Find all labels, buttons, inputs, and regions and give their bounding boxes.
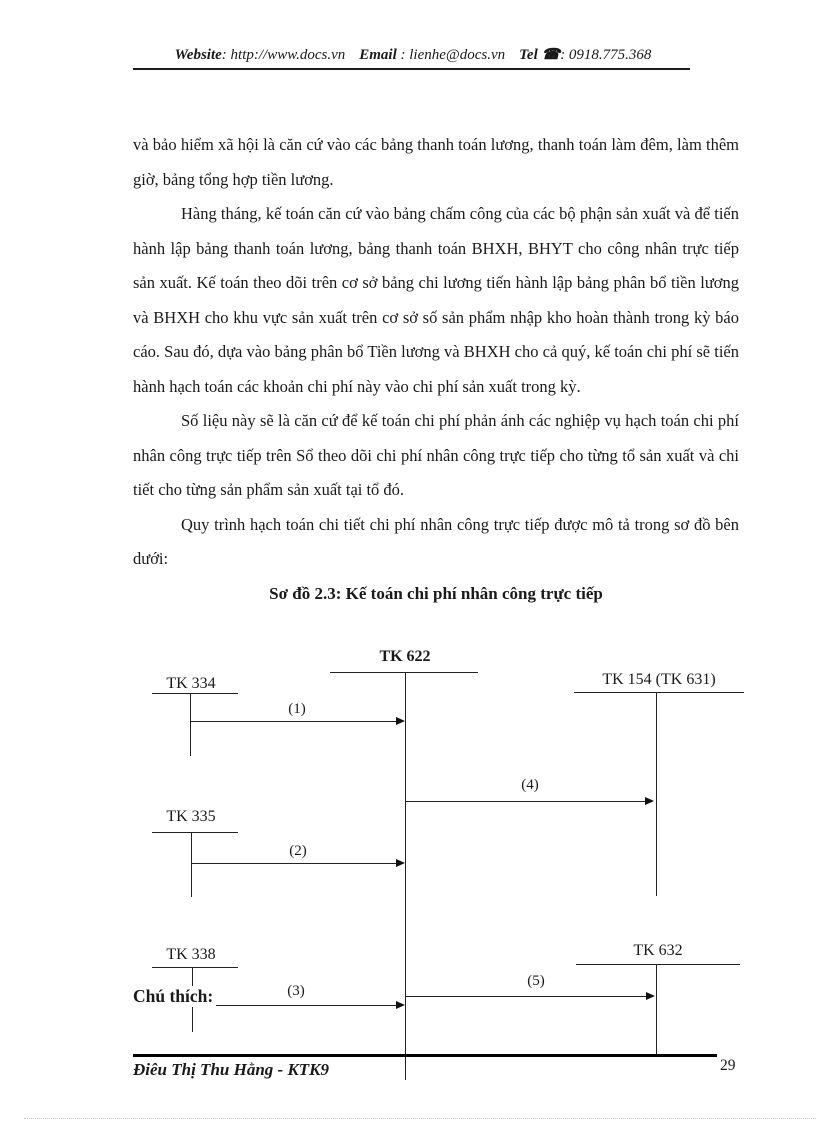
- paragraph-2: Hàng tháng, kế toán căn cứ vào bảng chấm…: [133, 197, 739, 404]
- arrow-label-2: (2): [276, 843, 320, 860]
- page-bottom-dotted-rule: [24, 1118, 816, 1119]
- t-line-tk334: [152, 693, 238, 694]
- header-website-label: Website: [175, 47, 222, 63]
- account-label-tk338: TK 338: [143, 946, 239, 964]
- paragraph-3: Số liệu này sẽ là căn cứ để kế toán chi …: [133, 404, 739, 508]
- arrow-line: [406, 996, 647, 997]
- arrow-line: [193, 1005, 397, 1006]
- header-email-label: Email: [359, 47, 397, 63]
- account-label-tk154: TK 154 (TK 631): [574, 671, 744, 689]
- t-line-tk622: [330, 672, 478, 673]
- t-line-tk154: [574, 692, 744, 693]
- arrow-label-1: (1): [275, 701, 319, 718]
- arrow-3-tk338-to-tk622: [193, 1001, 405, 1010]
- footer-author: Điêu Thị Thu Hằng - KTK9: [133, 1060, 329, 1080]
- arrowhead-right-icon: [396, 1001, 405, 1009]
- arrow-line: [406, 801, 646, 802]
- arrowhead-right-icon: [645, 797, 654, 805]
- document-page: Website: http://www.docs.vnEmail : lienh…: [0, 0, 816, 1123]
- header-tel-label: Tel: [519, 47, 538, 63]
- arrow-4-tk622-to-tk154: [406, 797, 654, 806]
- arrowhead-right-icon: [396, 859, 405, 867]
- arrow-line: [191, 863, 397, 864]
- t-line-tk632: [576, 964, 740, 965]
- t-line-tk335: [152, 832, 238, 833]
- diagram-title: Sơ đồ 2.3: Kế toán chi phí nhân công trự…: [133, 577, 739, 612]
- arrow-label-5: (5): [514, 973, 558, 990]
- arrow-line: [190, 721, 397, 722]
- account-label-tk622: TK 622: [330, 648, 480, 666]
- arrow-label-4: (4): [508, 777, 552, 794]
- arrow-5-tk622-to-tk632: [406, 992, 655, 1001]
- header-tel-value: : 0918.775.368: [560, 47, 651, 63]
- paragraph-4: Quy trình hạch toán chi tiết chi phí nhâ…: [133, 508, 739, 577]
- arrow-1-tk334-to-tk622: [190, 717, 405, 726]
- header-website-value: : http://www.docs.vn: [222, 47, 345, 63]
- arrow-label-3: (3): [274, 983, 318, 1000]
- paragraph-1: và bảo hiểm xã hội là căn cứ vào các bản…: [133, 128, 739, 197]
- account-label-tk334: TK 334: [143, 675, 239, 693]
- arrow-2-tk335-to-tk622: [191, 859, 405, 868]
- t-stem-tk632: [656, 964, 657, 1056]
- t-line-tk338: [152, 967, 238, 968]
- body-text-block: và bảo hiểm xã hội là căn cứ vào các bản…: [133, 128, 739, 611]
- footer-rule: [133, 1054, 717, 1057]
- header-contact-line: Website: http://www.docs.vnEmail : lienh…: [133, 45, 693, 64]
- account-label-tk335: TK 335: [143, 808, 239, 826]
- page-number: 29: [720, 1057, 736, 1075]
- legend-caption: Chú thích:: [133, 986, 216, 1007]
- arrowhead-right-icon: [646, 992, 655, 1000]
- t-stem-tk622: [405, 672, 406, 1080]
- header-rule: [133, 68, 690, 70]
- header-email-value: : lienhe@docs.vn: [401, 47, 506, 63]
- arrowhead-right-icon: [396, 717, 405, 725]
- t-stem-tk154: [656, 692, 657, 896]
- phone-icon: ☎: [542, 47, 561, 63]
- account-label-tk632: TK 632: [576, 942, 740, 960]
